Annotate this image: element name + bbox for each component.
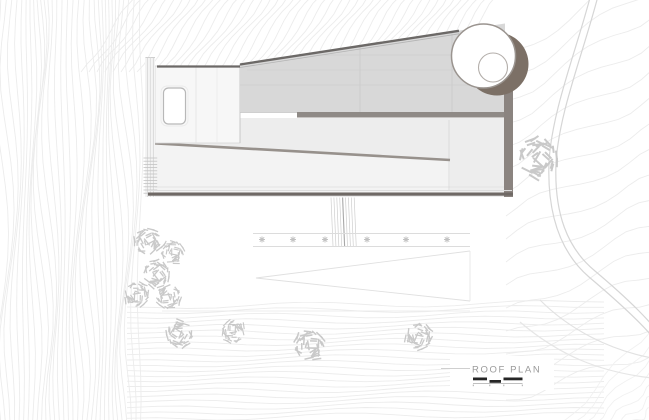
contour-line bbox=[131, 0, 140, 420]
contour-line bbox=[506, 174, 649, 239]
plant-symbol bbox=[322, 237, 328, 243]
scale-tick bbox=[489, 385, 490, 387]
contour-line bbox=[127, 413, 604, 420]
rectangular-skylight bbox=[164, 88, 186, 124]
contour-line bbox=[127, 333, 604, 340]
contour-line bbox=[124, 0, 137, 420]
roof-plan-drawing: ROOF PLAN bbox=[0, 0, 649, 420]
plant-symbol bbox=[364, 237, 370, 243]
scale-tick bbox=[473, 385, 474, 387]
contour-line bbox=[61, 0, 65, 420]
plan-label: ROOF PLAN bbox=[441, 356, 554, 390]
contour-line bbox=[127, 306, 604, 314]
contour-line bbox=[169, 0, 224, 72]
plant-symbol bbox=[259, 237, 265, 243]
contour-line bbox=[185, 0, 240, 72]
contour-line bbox=[127, 311, 604, 319]
circular-oculus bbox=[479, 53, 508, 82]
contour-line bbox=[506, 0, 649, 55]
garden-clearing bbox=[146, 198, 482, 302]
contour-line bbox=[506, 96, 649, 170]
site-plan-canvas: ROOF PLAN bbox=[0, 0, 649, 420]
contour-line bbox=[42, 0, 57, 420]
contour-line bbox=[620, 395, 649, 420]
scale-tick bbox=[522, 385, 523, 387]
roof-fascia-band bbox=[297, 112, 513, 118]
plant-symbol bbox=[403, 237, 409, 243]
plant-symbol bbox=[290, 237, 296, 243]
driveway-path bbox=[520, 0, 649, 378]
contour-line bbox=[4, 0, 18, 420]
contour-line bbox=[506, 148, 649, 216]
contour-line bbox=[37, 0, 54, 420]
contour-line bbox=[506, 70, 649, 147]
contour-line bbox=[632, 408, 649, 420]
contour-line bbox=[137, 0, 143, 420]
contour-line bbox=[29, 0, 37, 420]
driveway-curve-inner bbox=[556, 0, 649, 335]
driveway-curve-outer bbox=[549, 0, 649, 340]
plan-title: ROOF PLAN bbox=[472, 365, 541, 376]
contour-line bbox=[10, 0, 21, 420]
contour-line bbox=[22, 0, 27, 420]
scale-bar-segment bbox=[473, 378, 487, 381]
contour-line bbox=[127, 402, 604, 409]
plant-symbol bbox=[444, 237, 450, 243]
contour-line bbox=[66, 0, 70, 420]
contour-line bbox=[92, 0, 102, 420]
contour-line bbox=[127, 322, 604, 329]
scale-bar-segment bbox=[504, 378, 523, 381]
contour-line bbox=[129, 0, 184, 72]
contour-line bbox=[177, 0, 232, 72]
bottom-roof-edge bbox=[148, 193, 513, 196]
scale-tick bbox=[503, 385, 504, 387]
contour-line bbox=[153, 0, 208, 72]
tree bbox=[161, 315, 198, 353]
contour-line bbox=[17, 0, 25, 420]
right-edge-shadow bbox=[504, 90, 513, 197]
contour-line bbox=[127, 344, 604, 351]
scale-bar-segment bbox=[490, 380, 502, 383]
